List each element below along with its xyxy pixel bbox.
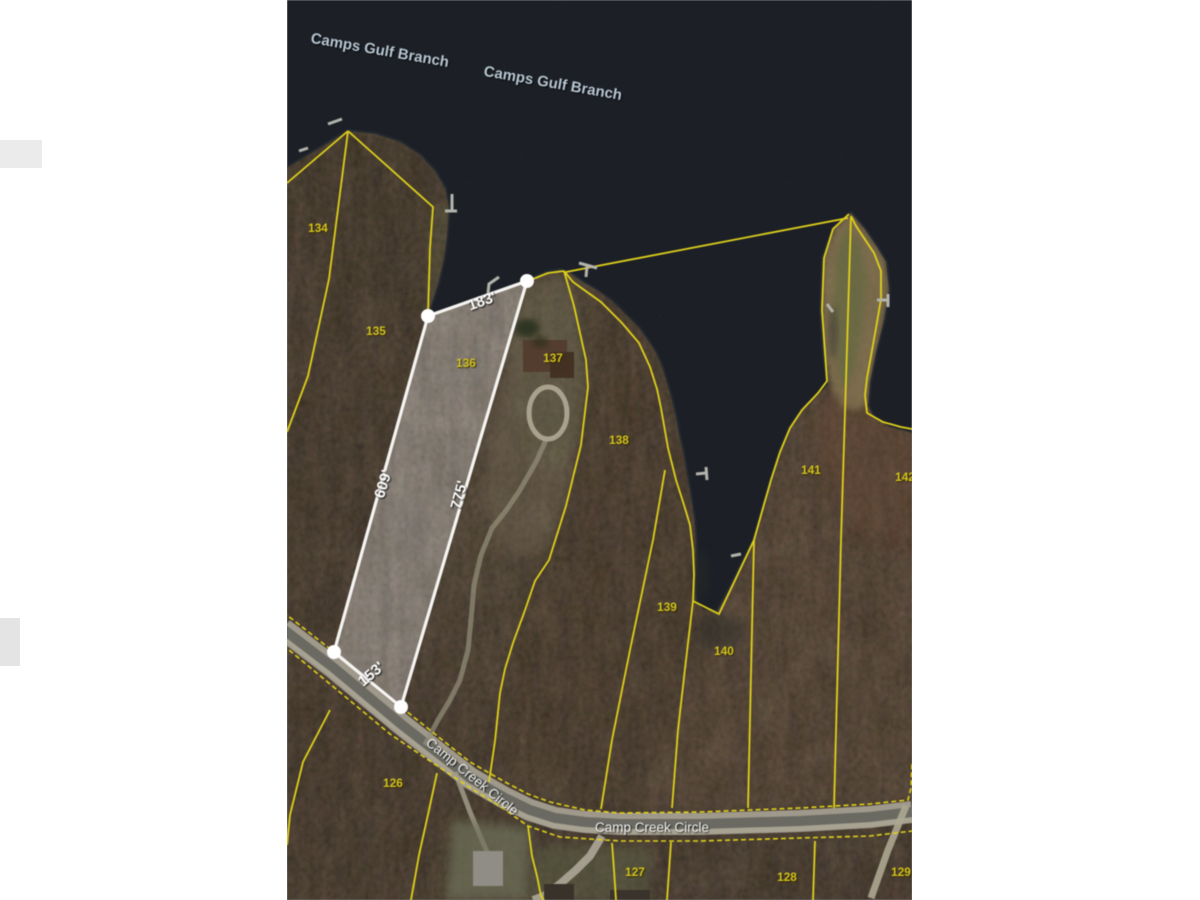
svg-text:135: 135 bbox=[366, 324, 386, 338]
svg-text:Camp Creek Circle: Camp Creek Circle bbox=[595, 820, 709, 835]
svg-text:136: 136 bbox=[456, 356, 476, 370]
svg-text:139: 139 bbox=[657, 600, 677, 614]
svg-text:141: 141 bbox=[801, 463, 821, 477]
svg-text:134: 134 bbox=[308, 221, 328, 235]
svg-text:128: 128 bbox=[777, 870, 797, 884]
svg-text:127: 127 bbox=[625, 865, 645, 879]
svg-text:129: 129 bbox=[891, 865, 911, 879]
svg-text:138: 138 bbox=[609, 433, 629, 447]
svg-text:140: 140 bbox=[714, 644, 734, 658]
svg-text:137: 137 bbox=[543, 351, 563, 365]
svg-text:126: 126 bbox=[383, 776, 403, 790]
